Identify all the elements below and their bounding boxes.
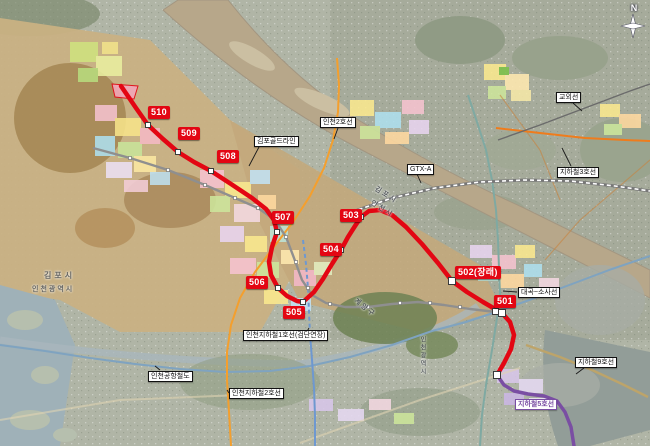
station-badge-506: 506: [246, 276, 268, 289]
boundary-incheon-metro-vertical: 인천광역시: [418, 336, 427, 376]
label-incheon-line2: 인천2호선: [320, 117, 356, 128]
station-badge-507: 507: [272, 211, 294, 224]
label-subway-line3: 지하철3호선: [557, 167, 599, 178]
label-gtx-a: GTX-A: [407, 164, 434, 175]
label-incheon-subway-line2: 인천지하철2호선: [229, 388, 284, 399]
map-graphics: [0, 0, 650, 446]
label-airport-railroad: 인천공항철도: [148, 371, 193, 382]
label-subway-line5: 지하철5호선: [515, 399, 557, 410]
station-badge-510: 510: [148, 106, 170, 119]
label-subway-line9: 지하철9호선: [575, 357, 617, 368]
station-badge-504: 504: [320, 243, 342, 256]
station-badge-505: 505: [283, 306, 305, 319]
station-badge-502: 502(장래): [455, 266, 501, 279]
label-gyowoe-line: 교외선: [556, 92, 581, 103]
compass-north-label: N: [622, 3, 646, 37]
station-badge-508: 508: [217, 150, 239, 163]
boundary-gimpo-city-west: 김포시: [44, 270, 75, 281]
station-badge-509: 509: [178, 127, 200, 140]
boundary-incheon-metro-west: 인천광역시: [32, 284, 74, 294]
label-incheon-line1-extension: 인천지하철1호선(검단연장): [243, 330, 328, 341]
label-daegok-sosa-line: 대곡~소사선: [518, 287, 560, 298]
map-canvas: 510 509 508 507 506 505 504 503 502(장래) …: [0, 0, 650, 446]
station-badge-503: 503: [340, 209, 362, 222]
label-gimpo-gold-line: 김포골드라인: [254, 136, 299, 147]
station-badge-501: 501: [494, 295, 516, 308]
